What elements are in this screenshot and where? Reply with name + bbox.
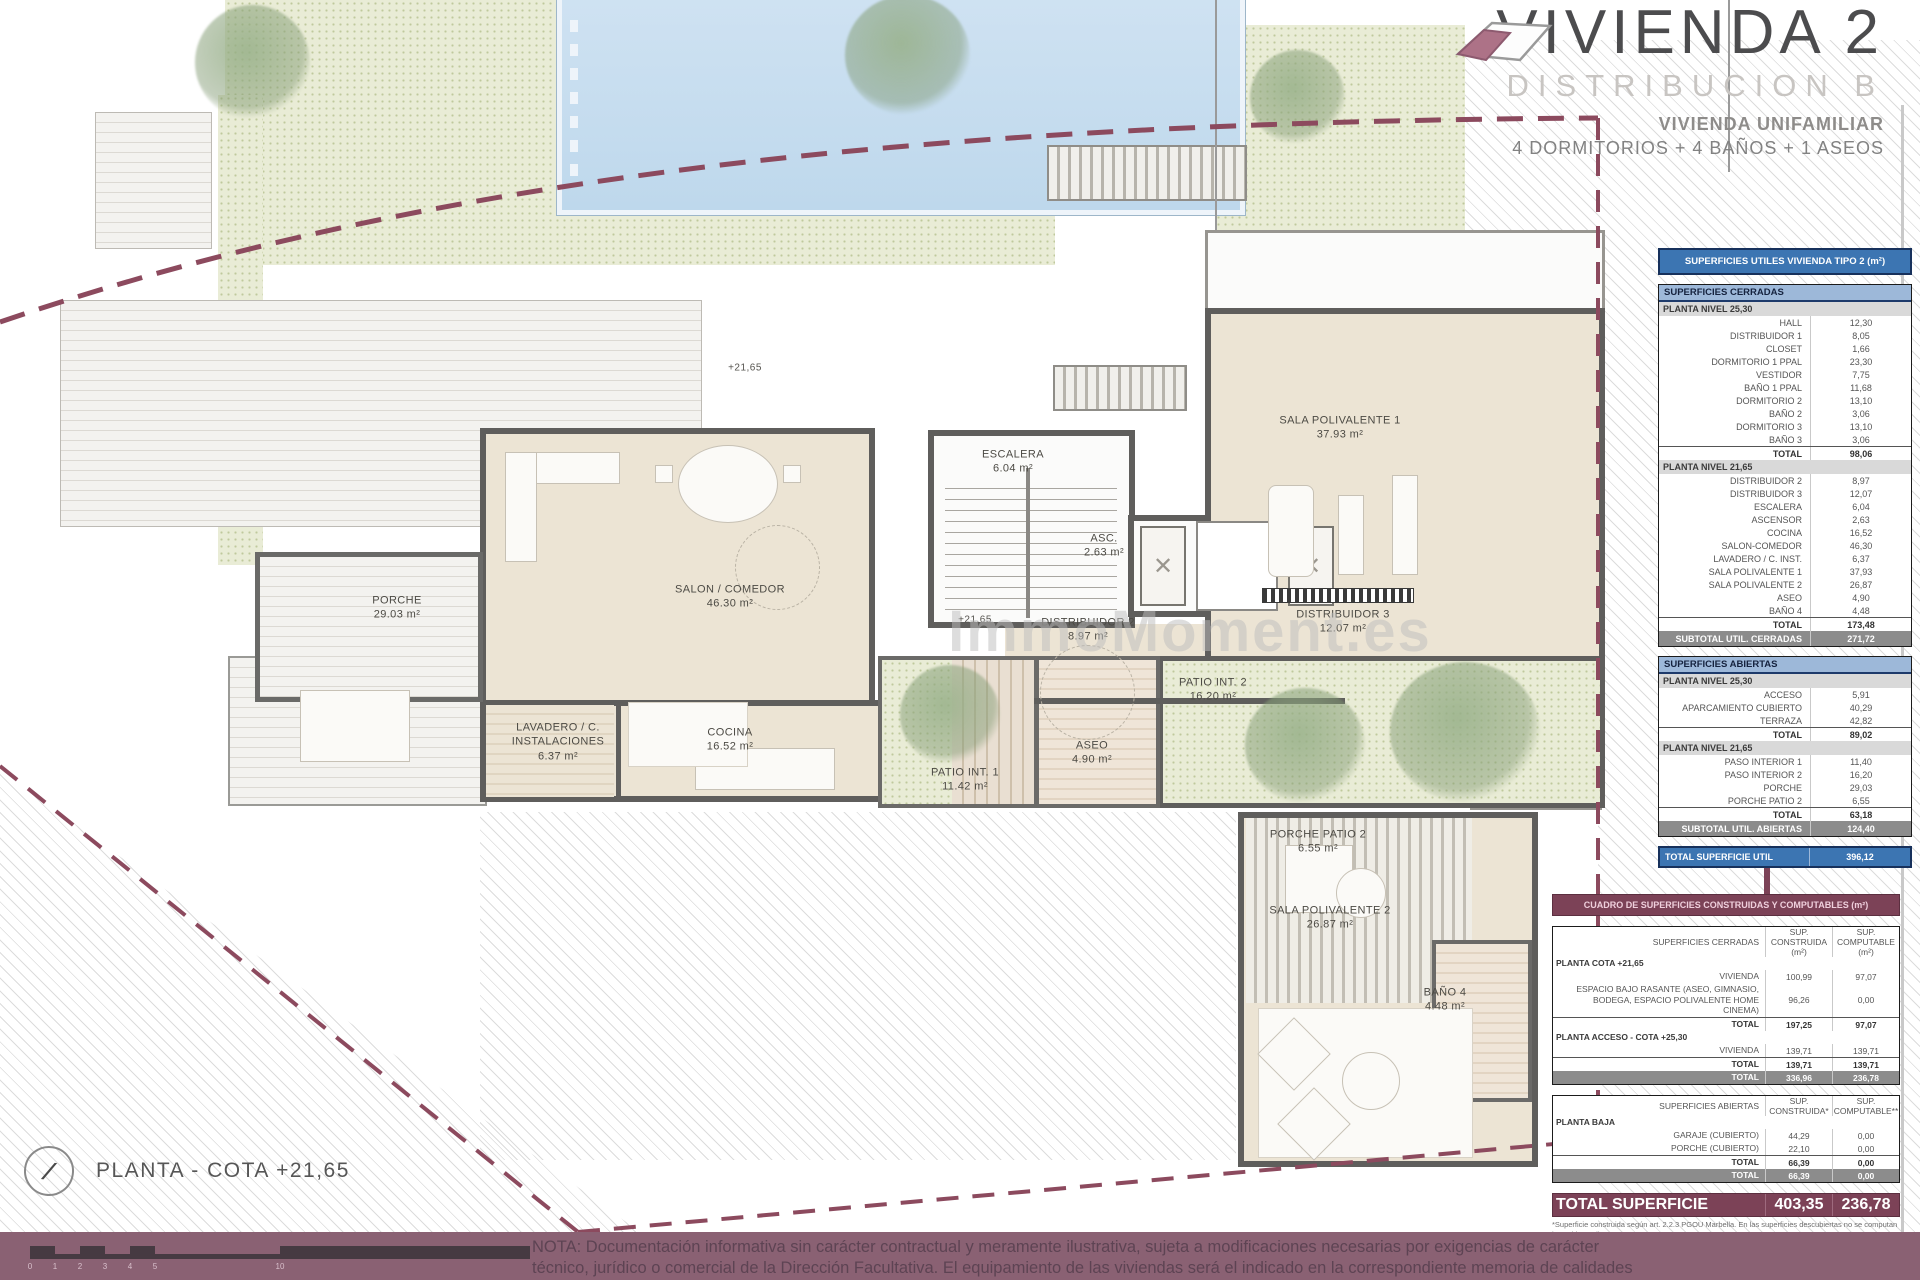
row-constructed: 44,29 [1765, 1129, 1832, 1142]
row-value: 46,30 [1810, 539, 1911, 552]
row-label: DISTRIBUIDOR 2 [1659, 476, 1810, 486]
row-label: TOTAL [1553, 1169, 1765, 1182]
total-util-value: 396,12 [1809, 848, 1910, 866]
table-construidas-cerradas: SUPERFICIES CERRADAS SUP. CONSTRUIDA (m²… [1552, 926, 1900, 1085]
title-line-2: 4 DORMITORIOS + 4 BAÑOS + 1 ASEOS [1280, 138, 1884, 159]
table-row: DISTRIBUIDOR 1 8,05 [1659, 329, 1911, 342]
row-value: 98,06 [1810, 447, 1911, 460]
room-area: 4.48 m² [1424, 1000, 1467, 1014]
row-value: 271,72 [1810, 631, 1911, 646]
row-value: 16,20 [1810, 768, 1911, 781]
table-row: SUBTOTAL UTIL. ABIERTAS 124,40 [1659, 821, 1911, 836]
scale-number: 0 [28, 1262, 32, 1271]
table-row: SALA POLIVALENTE 1 37,93 [1659, 565, 1911, 578]
row-value: 40,29 [1810, 701, 1911, 714]
row-value: 3,06 [1810, 407, 1911, 420]
room-label: BAÑO 4 4.48 m² [1424, 986, 1467, 1015]
row-value: 63,18 [1810, 808, 1911, 821]
row-label: BAÑO 4 [1659, 606, 1810, 616]
row-value: 29,03 [1810, 781, 1911, 794]
room-name: PORCHE [372, 595, 421, 607]
table-row: SALON-COMEDOR 46,30 [1659, 539, 1911, 552]
row-label: SUBTOTAL UTIL. ABIERTAS [1659, 824, 1810, 834]
page-title: VIVIENDA 2 [1280, 2, 1884, 64]
table-row: PORCHE (CUBIERTO) 22,10 0,00 [1553, 1142, 1899, 1155]
row-constructed: 100,99 [1765, 970, 1832, 983]
row-label: SALON-COMEDOR [1659, 541, 1810, 551]
row-constructed: 139,71 [1765, 1058, 1832, 1071]
row-label: ASEO [1659, 593, 1810, 603]
room-area: 46.30 m² [675, 597, 785, 611]
table-row: SUBTOTAL UTIL. CERRADAS 271,72 [1659, 631, 1911, 646]
row-label: TOTAL [1659, 810, 1810, 820]
row-constructed: 22,10 [1765, 1142, 1832, 1155]
row-value: 89,02 [1810, 728, 1911, 741]
room-area: 16.20 m² [1179, 690, 1247, 704]
row-label: APARCAMIENTO CUBIERTO [1659, 703, 1810, 713]
room-name: SALON / COMEDOR [675, 584, 785, 596]
row-computable: 0,00 [1832, 983, 1899, 1017]
row-label: ESCALERA [1659, 502, 1810, 512]
table-row: LAVADERO / C. INST. 6,37 [1659, 552, 1911, 565]
row-label: SALA POLIVALENTE 2 [1659, 580, 1810, 590]
construidas-abiertas-rows: SUPERFICIES ABIERTAS SUP. CONSTRUIDA* SU… [1553, 1096, 1899, 1182]
row-label: PLANTA COTA +21,65 [1553, 957, 1899, 970]
table-row: PORCHE PATIO 2 6,55 [1659, 794, 1911, 807]
row-label: SUPERFICIES ABIERTAS [1553, 1100, 1765, 1113]
row-label: PORCHE PATIO 2 [1659, 796, 1810, 806]
table-row: PLANTA NIVEL 21,65 [1659, 460, 1911, 474]
row-label: TOTAL [1553, 1071, 1765, 1084]
room-area: 4.90 m² [1072, 753, 1112, 767]
room-label: +21,65 [728, 362, 762, 375]
room-label: PORCHE 29.03 m² [372, 594, 421, 623]
abiertas-header: SUPERFICIES ABIERTAS [1659, 657, 1911, 674]
row-label: CLOSET [1659, 344, 1810, 354]
table-row: ESCALERA 6,04 [1659, 500, 1911, 513]
row-label: VIVIENDA [1553, 1044, 1765, 1057]
row-value: 13,10 [1810, 394, 1911, 407]
watermark: ImmoMoment.es [830, 598, 1550, 665]
row-label: PLANTA NIVEL 25,30 [1659, 676, 1911, 686]
table-row: CLOSET 1,66 [1659, 342, 1911, 355]
table-row: PORCHE 29,03 [1659, 781, 1911, 794]
row-value: 11,68 [1810, 381, 1911, 394]
table-row: PLANTA BAJA [1553, 1116, 1899, 1129]
table-row: TOTAL 98,06 [1659, 446, 1911, 460]
room-label: ASEO 4.90 m² [1072, 739, 1112, 768]
scale-number: 3 [103, 1262, 107, 1271]
row-computable: 139,71 [1832, 1058, 1899, 1071]
eraser-logo-icon [1452, 14, 1556, 76]
table-row: PASO INTERIOR 2 16,20 [1659, 768, 1911, 781]
room-name: BAÑO 4 [1424, 987, 1467, 999]
room-name: SALA POLIVALENTE 2 [1269, 905, 1390, 917]
row-value: 4,48 [1810, 604, 1911, 617]
row-label: PLANTA NIVEL 25,30 [1659, 304, 1911, 314]
table-row: ASCENSOR 2,63 [1659, 513, 1911, 526]
row-value: 42,82 [1810, 714, 1911, 727]
row-value: 23,30 [1810, 355, 1911, 368]
table-row: BAÑO 3 3,06 [1659, 433, 1911, 446]
row-label: TOTAL [1553, 1018, 1765, 1031]
row-label: PASO INTERIOR 1 [1659, 757, 1810, 767]
row-label: BAÑO 2 [1659, 409, 1810, 419]
table-row: HALL 12,30 [1659, 316, 1911, 329]
table-row: APARCAMIENTO CUBIERTO 40,29 [1659, 701, 1911, 714]
row-constructed: 197,25 [1765, 1018, 1832, 1031]
page-subtitle: DISTRIBUCION B [1280, 68, 1884, 104]
row-label: TOTAL [1659, 620, 1810, 630]
row-computable: 97,07 [1832, 970, 1899, 983]
table-superficies-abiertas: SUPERFICIES ABIERTAS PLANTA NIVEL 25,30 … [1658, 656, 1912, 837]
scale-number: 4 [128, 1262, 132, 1271]
row-label: DORMITORIO 2 [1659, 396, 1810, 406]
room-area: 2.63 m² [1084, 546, 1124, 560]
plan-sheet: ✕ ✕ [0, 0, 1920, 1280]
table-row: ASEO 4,90 [1659, 591, 1911, 604]
table-row: VESTIDOR 7,75 [1659, 368, 1911, 381]
table-row: VIVIENDA 100,99 97,07 [1553, 970, 1899, 983]
room-name: ASC. [1090, 533, 1117, 545]
row-label: COCINA [1659, 528, 1810, 538]
total-superficie-c1: 403,35 [1765, 1194, 1832, 1216]
room-label: PORCHE PATIO 2 6.55 m² [1270, 828, 1366, 857]
table-construidas-abiertas: SUPERFICIES ABIERTAS SUP. CONSTRUIDA* SU… [1552, 1095, 1900, 1183]
scale-bar-block [130, 1246, 155, 1259]
row-value: 8,97 [1810, 474, 1911, 487]
row-computable: 0,00 [1832, 1142, 1899, 1155]
table-row: PLANTA COTA +21,65 [1553, 957, 1899, 970]
row-label: LAVADERO / C. INST. [1659, 554, 1810, 564]
table-superficies-cerradas: SUPERFICIES CERRADAS PLANTA NIVEL 25,30 … [1658, 284, 1912, 647]
table-row: ACCESO 5,91 [1659, 688, 1911, 701]
table-row: BAÑO 2 3,06 [1659, 407, 1911, 420]
table-row: SALA POLIVALENTE 2 26,87 [1659, 578, 1911, 591]
table-row: SUPERFICIES CERRADAS SUP. CONSTRUIDA (m²… [1553, 927, 1899, 957]
row-label: SUPERFICIES CERRADAS [1553, 936, 1765, 949]
row-label: ACCESO [1659, 690, 1810, 700]
table-row: TOTAL 89,02 [1659, 727, 1911, 741]
table-row: DORMITORIO 2 13,10 [1659, 394, 1911, 407]
row-computable: 139,71 [1832, 1044, 1899, 1057]
row-label: VESTIDOR [1659, 370, 1810, 380]
room-label: SALON / COMEDOR 46.30 m² [675, 583, 785, 612]
table-row: ESPACIO BAJO RASANTE (ASEO, GIMNASIO, BO… [1553, 983, 1899, 1017]
row-value: 16,52 [1810, 526, 1911, 539]
room-name: ASEO [1076, 740, 1108, 752]
scale-number: 2 [78, 1262, 82, 1271]
row-label: PORCHE [1659, 783, 1810, 793]
row-constructed: SUP. CONSTRUIDA* [1765, 1096, 1832, 1116]
row-computable: 0,00 [1832, 1129, 1899, 1142]
row-label: BAÑO 3 [1659, 435, 1810, 445]
table-row: DORMITORIO 3 13,10 [1659, 420, 1911, 433]
title-line-1: VIVIENDA UNIFAMILIAR [1280, 114, 1884, 135]
table-row: TERRAZA 42,82 [1659, 714, 1911, 727]
plan-caption: ∕ PLANTA - COTA +21,65 [24, 1146, 350, 1196]
row-constructed: SUP. CONSTRUIDA (m²) [1765, 927, 1832, 957]
row-value: 6,37 [1810, 552, 1911, 565]
room-area: 16.52 m² [707, 740, 754, 754]
row-label: TOTAL [1659, 730, 1810, 740]
row-value: 6,04 [1810, 500, 1911, 513]
row-value: 26,87 [1810, 578, 1911, 591]
room-area: 37.93 m² [1279, 428, 1400, 442]
room-area: 11.42 m² [910, 780, 1020, 794]
scale-bar-block [30, 1246, 55, 1259]
connector-line [1764, 868, 1770, 894]
table-row: BAÑO 1 PPAL 11,68 [1659, 381, 1911, 394]
room-label: PATIO INT. 1 11.42 m² [910, 766, 1020, 795]
room-area: 6.55 m² [1270, 842, 1366, 856]
row-label: BAÑO 1 PPAL [1659, 383, 1810, 393]
row-label: SALA POLIVALENTE 1 [1659, 567, 1810, 577]
room-area: 26.87 m² [1269, 918, 1390, 932]
bottom-band: 0 1 2 3 4 5 10 NOTA: Documentación infor… [0, 1232, 1920, 1280]
table-row: TOTAL 173,48 [1659, 617, 1911, 631]
construidas-cerradas-rows: SUPERFICIES CERRADAS SUP. CONSTRUIDA (m²… [1553, 927, 1899, 1084]
scale-number: 1 [53, 1262, 57, 1271]
row-constructed: 66,39 [1765, 1169, 1832, 1182]
row-label: TOTAL [1553, 1156, 1765, 1169]
abiertas-rows: PLANTA NIVEL 25,30 ACCESO 5,91 APARCAMIE… [1659, 674, 1911, 836]
row-label: HALL [1659, 318, 1810, 328]
row-label: PLANTA BAJA [1553, 1116, 1899, 1129]
cerradas-rows: PLANTA NIVEL 25,30 HALL 12,30 DISTRIBUID… [1659, 302, 1911, 646]
room-label: SALA POLIVALENTE 1 37.93 m² [1279, 414, 1400, 443]
row-value: 12,30 [1810, 316, 1911, 329]
row-label: PASO INTERIOR 2 [1659, 770, 1810, 780]
table-row: TOTAL 66,39 0,00 [1553, 1155, 1899, 1169]
total-util-label: TOTAL SUPERFICIE UTIL [1660, 852, 1809, 862]
nota-text: NOTA: Documentación informativa sin cará… [532, 1237, 1862, 1279]
row-value: 11,40 [1810, 755, 1911, 768]
scale-number: 5 [153, 1262, 157, 1271]
row-label: VIVIENDA [1553, 970, 1765, 983]
room-area: 6.04 m² [982, 462, 1044, 476]
nota-line-1: NOTA: Documentación informativa sin cará… [532, 1237, 1862, 1258]
table-row: PLANTA NIVEL 21,65 [1659, 741, 1911, 755]
cerradas-header: SUPERFICIES CERRADAS [1659, 285, 1911, 302]
row-value: 4,90 [1810, 591, 1911, 604]
table-row: TOTAL 197,25 97,07 [1553, 1017, 1899, 1031]
table-row: TOTAL 63,18 [1659, 807, 1911, 821]
table-row: PASO INTERIOR 1 11,40 [1659, 755, 1911, 768]
row-computable: 0,00 [1832, 1156, 1899, 1169]
row-label: DORMITORIO 1 PPAL [1659, 357, 1810, 367]
row-value: 5,91 [1810, 688, 1911, 701]
row-label: TOTAL [1659, 449, 1810, 459]
row-value: 3,06 [1810, 433, 1911, 446]
room-name: PATIO INT. 2 [1179, 677, 1247, 689]
row-label: DISTRIBUIDOR 3 [1659, 489, 1810, 499]
table-row: DISTRIBUIDOR 2 8,97 [1659, 474, 1911, 487]
room-name: COCINA [707, 727, 752, 739]
total-superficie-util-row: TOTAL SUPERFICIE UTIL 396,12 [1658, 846, 1912, 868]
row-value: 7,75 [1810, 368, 1911, 381]
row-label: ASCENSOR [1659, 515, 1810, 525]
table-row: TOTAL 66,39 0,00 [1553, 1169, 1899, 1182]
row-constructed: 96,26 [1765, 983, 1832, 1017]
row-label: GARAJE (CUBIERTO) [1553, 1129, 1765, 1142]
row-label: PLANTA ACCESO - COTA +25,30 [1553, 1031, 1899, 1044]
row-value: 6,55 [1810, 794, 1911, 807]
row-label: PLANTA NIVEL 21,65 [1659, 462, 1911, 472]
row-computable: 0,00 [1832, 1169, 1899, 1182]
table-row: COCINA 16,52 [1659, 526, 1911, 539]
row-value: 37,93 [1810, 565, 1911, 578]
row-computable: SUP. COMPUTABLE (m²) [1832, 927, 1899, 957]
scale-bar-block [80, 1246, 105, 1259]
plan-number-icon: ∕ [21, 1143, 77, 1199]
table-row: PLANTA ACCESO - COTA +25,30 [1553, 1031, 1899, 1044]
row-constructed: 139,71 [1765, 1044, 1832, 1057]
table-row: PLANTA NIVEL 25,30 [1659, 302, 1911, 316]
cuadro-title: CUADRO DE SUPERFICIES CONSTRUIDAS Y COMP… [1552, 894, 1900, 916]
room-area: 29.03 m² [372, 608, 421, 622]
utiles-title-bar: SUPERFICIES UTILES VIVIENDA TIPO 2 (m²) [1658, 248, 1912, 275]
row-label: PORCHE (CUBIERTO) [1553, 1142, 1765, 1155]
row-label: ESPACIO BAJO RASANTE (ASEO, GIMNASIO, BO… [1553, 983, 1765, 1017]
table-row: VIVIENDA 139,71 139,71 [1553, 1044, 1899, 1057]
room-label: ASC. 2.63 m² [1084, 532, 1124, 561]
row-constructed: 336,96 [1765, 1071, 1832, 1084]
row-label: DISTRIBUIDOR 1 [1659, 331, 1810, 341]
room-label: COCINA 16.52 m² [707, 726, 754, 755]
row-label: TOTAL [1553, 1058, 1765, 1071]
room-area: 6.37 m² [483, 749, 633, 763]
room-label: PATIO INT. 2 16.20 m² [1179, 676, 1247, 705]
superficies-construidas-panel: CUADRO DE SUPERFICIES CONSTRUIDAS Y COMP… [1552, 868, 1900, 1252]
table-row: BAÑO 4 4,48 [1659, 604, 1911, 617]
row-constructed: 66,39 [1765, 1156, 1832, 1169]
scale-number: 10 [276, 1262, 285, 1271]
room-name: PATIO INT. 1 [931, 767, 999, 779]
row-label: PLANTA NIVEL 21,65 [1659, 743, 1911, 753]
row-value: 173,48 [1810, 618, 1911, 631]
table-row: SUPERFICIES ABIERTAS SUP. CONSTRUIDA* SU… [1553, 1096, 1899, 1116]
row-computable: 236,78 [1832, 1071, 1899, 1084]
room-label: ESCALERA 6.04 m² [982, 448, 1044, 477]
superficies-utiles-panel: SUPERFICIES UTILES VIVIENDA TIPO 2 (m²) … [1658, 248, 1912, 868]
table-row: DISTRIBUIDOR 3 12,07 [1659, 487, 1911, 500]
room-label: SALA POLIVALENTE 2 26.87 m² [1269, 904, 1390, 933]
room-name: ESCALERA [982, 449, 1044, 461]
row-label: TERRAZA [1659, 716, 1810, 726]
table-row: GARAJE (CUBIERTO) 44,29 0,00 [1553, 1129, 1899, 1142]
room-name: SALA POLIVALENTE 1 [1279, 415, 1400, 427]
table-row: DORMITORIO 1 PPAL 23,30 [1659, 355, 1911, 368]
room-name: +21,65 [728, 363, 762, 374]
total-superficie-label: TOTAL SUPERFICIE [1553, 1194, 1765, 1216]
table-row: TOTAL 139,71 139,71 [1553, 1057, 1899, 1071]
row-computable: SUP. COMPUTABLE** [1832, 1096, 1899, 1116]
table-row: PLANTA NIVEL 25,30 [1659, 674, 1911, 688]
row-value: 12,07 [1810, 487, 1911, 500]
room-name: PORCHE PATIO 2 [1270, 829, 1366, 841]
row-value: 2,63 [1810, 513, 1911, 526]
total-superficie-c2: 236,78 [1832, 1194, 1899, 1216]
scale-bar-block [280, 1246, 530, 1259]
title-block: VIVIENDA 2 DISTRIBUCION B VIVIENDA UNIFA… [1280, 2, 1884, 159]
row-value: 124,40 [1810, 821, 1911, 836]
table-row: TOTAL 336,96 236,78 [1553, 1071, 1899, 1084]
row-label: DORMITORIO 3 [1659, 422, 1810, 432]
nota-line-2: técnico, jurídico o comercial de la Dire… [532, 1258, 1862, 1279]
room-name: LAVADERO / C. INSTALACIONES [512, 722, 604, 748]
room-label: LAVADERO / C. INSTALACIONES 6.37 m² [483, 721, 633, 764]
row-value: 1,66 [1810, 342, 1911, 355]
row-computable: 97,07 [1832, 1018, 1899, 1031]
row-value: 13,10 [1810, 420, 1911, 433]
row-value: 8,05 [1810, 329, 1911, 342]
total-superficie-row: TOTAL SUPERFICIE 403,35 236,78 [1552, 1193, 1900, 1217]
plan-caption-label: PLANTA - COTA +21,65 [96, 1159, 350, 1183]
row-label: SUBTOTAL UTIL. CERRADAS [1659, 634, 1810, 644]
